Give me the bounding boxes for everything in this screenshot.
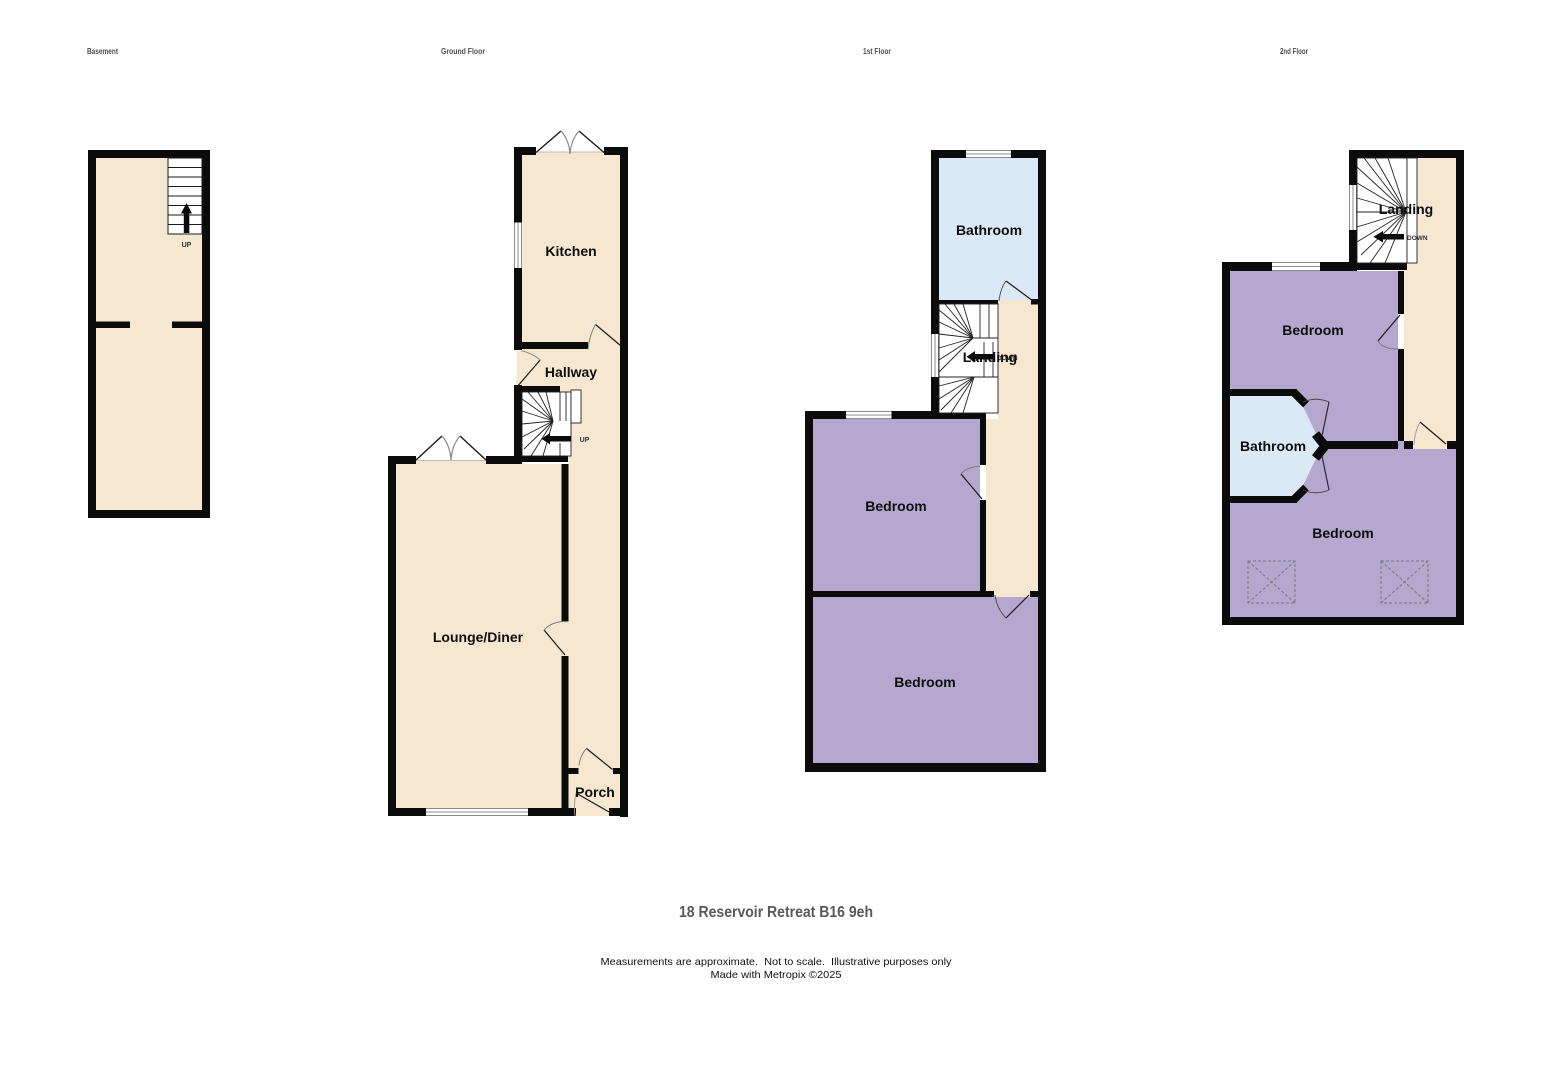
svg-text:Landing: Landing [963,349,1017,365]
svg-text:Lounge/Diner: Lounge/Diner [433,629,524,645]
svg-text:Bathroom: Bathroom [1240,438,1306,454]
svg-text:Hallway: Hallway [545,364,597,380]
svg-text:Measurements are approximate.: Measurements are approximate. Not to sca… [601,956,953,968]
svg-text:DOWN: DOWN [1407,235,1428,242]
svg-text:Bedroom: Bedroom [865,498,926,514]
svg-text:Porch: Porch [575,784,615,800]
svg-text:18 Reservoir Retreat B16 9eh: 18 Reservoir Retreat B16 9eh [679,904,873,921]
svg-text:2nd Floor: 2nd Floor [1280,47,1308,56]
svg-text:1st Floor: 1st Floor [863,47,891,56]
svg-text:Kitchen: Kitchen [545,243,596,259]
svg-text:Bedroom: Bedroom [1312,525,1373,541]
svg-text:Bedroom: Bedroom [894,674,955,690]
svg-text:UP: UP [580,437,590,444]
svg-text:Ground Floor: Ground Floor [441,47,485,56]
svg-text:UP: UP [182,242,192,249]
svg-text:Bathroom: Bathroom [956,222,1022,238]
svg-text:Made with Metropix ©2025: Made with Metropix ©2025 [711,969,842,981]
svg-text:Basement: Basement [87,47,118,56]
svg-text:Bedroom: Bedroom [1282,322,1343,338]
svg-text:Landing: Landing [1379,201,1433,217]
